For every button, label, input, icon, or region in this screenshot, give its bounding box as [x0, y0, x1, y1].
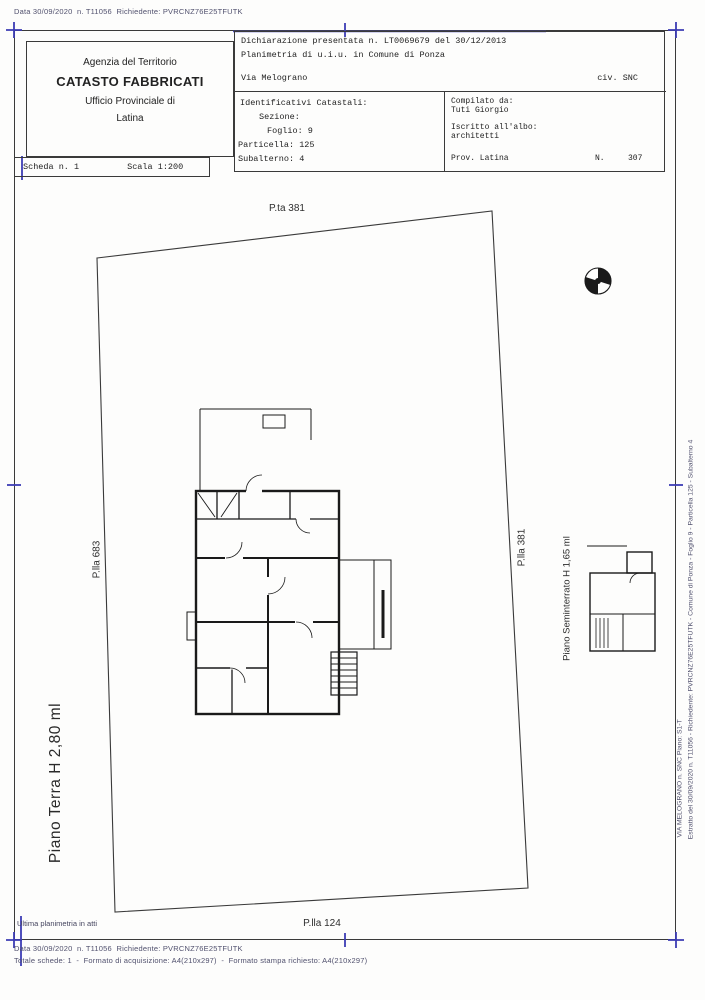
- declaration-section: Dichiarazione presentata n. LT0069679 de…: [235, 32, 666, 92]
- floor-caption-ground: Piano Terra H 2,80 ml: [47, 678, 65, 888]
- agency-office: Ufficio Provinciale di: [27, 96, 233, 107]
- parcel-label-left: P.lla 683: [92, 530, 103, 590]
- identifiers-particella: Particella: 125: [235, 138, 444, 152]
- right-margin-line1: Estratto del 30/09/2020 n. T11056 - Rich…: [688, 440, 695, 840]
- declaration-civic: civ. SNC: [597, 73, 638, 83]
- sheet-scale: Scala 1:200: [127, 162, 183, 172]
- identifiers-foglio: Foglio: 9: [235, 124, 444, 138]
- parcel-label-top: P.ta 381: [247, 203, 327, 214]
- compiler-n-value: 307: [628, 154, 642, 164]
- compiler-albo: architetti: [451, 132, 499, 142]
- compass-icon: [585, 268, 611, 294]
- identifiers-subalterno: Subalterno: 4: [235, 152, 444, 166]
- basement-floor-plan: [587, 546, 655, 651]
- compiler-name: Tuti Giorgio: [451, 106, 509, 116]
- footer-line2: Totale schede: 1 - Formato di acquisizio…: [14, 956, 367, 965]
- identifiers-title: Identificativi Catastali:: [235, 96, 444, 110]
- sheet-strip: Scheda n. 1 Scala 1:200: [14, 157, 210, 177]
- right-margin-line2: VIA MELOGRANO n. SNC Piano: S1-T: [677, 742, 684, 838]
- declaration-line1: Dichiarazione presentata n. LT0069679 de…: [241, 36, 506, 46]
- parcel-label-bottom: P.lla 124: [282, 918, 362, 929]
- compiler-section: Compilato da: Tuti Giorgio Iscritto all'…: [445, 92, 666, 172]
- top-meta-line: Data 30/09/2020 n. T11056 Richiedente: P…: [14, 7, 243, 16]
- floor-caption-basement: Piano Seminterrato H 1,65 ml: [562, 511, 573, 687]
- cadastral-identifiers: Identificativi Catastali: Sezione: Fogli…: [235, 92, 445, 172]
- agency-dept: Agenzia del Territorio: [27, 57, 233, 68]
- declaration-line2: Planimetria di u.i.u. in Comune di Ponza: [241, 50, 445, 60]
- parcel-label-right: P.lla 381: [517, 518, 528, 578]
- agency-city: Latina: [27, 113, 233, 124]
- identifiers-sezione: Sezione:: [235, 110, 444, 124]
- declaration-box: Dichiarazione presentata n. LT0069679 de…: [234, 31, 665, 172]
- main-floor-plan: [187, 409, 391, 714]
- compiler-n-label: N.: [595, 154, 605, 164]
- footer-line1: Data 30/09/2020 n. T11056 Richiedente: P…: [14, 944, 243, 953]
- agency-title: CATASTO FABBRICATI: [27, 74, 233, 89]
- compiler-prov: Prov. Latina: [451, 154, 509, 164]
- agency-header-box: Agenzia del Territorio CATASTO FABBRICAT…: [26, 41, 234, 157]
- parcel-boundary: [97, 211, 528, 912]
- declaration-street: Via Melograno: [241, 73, 307, 83]
- sheet-number: Scheda n. 1: [23, 162, 79, 172]
- last-plan-note: Ultima planimetria in atti: [17, 919, 97, 928]
